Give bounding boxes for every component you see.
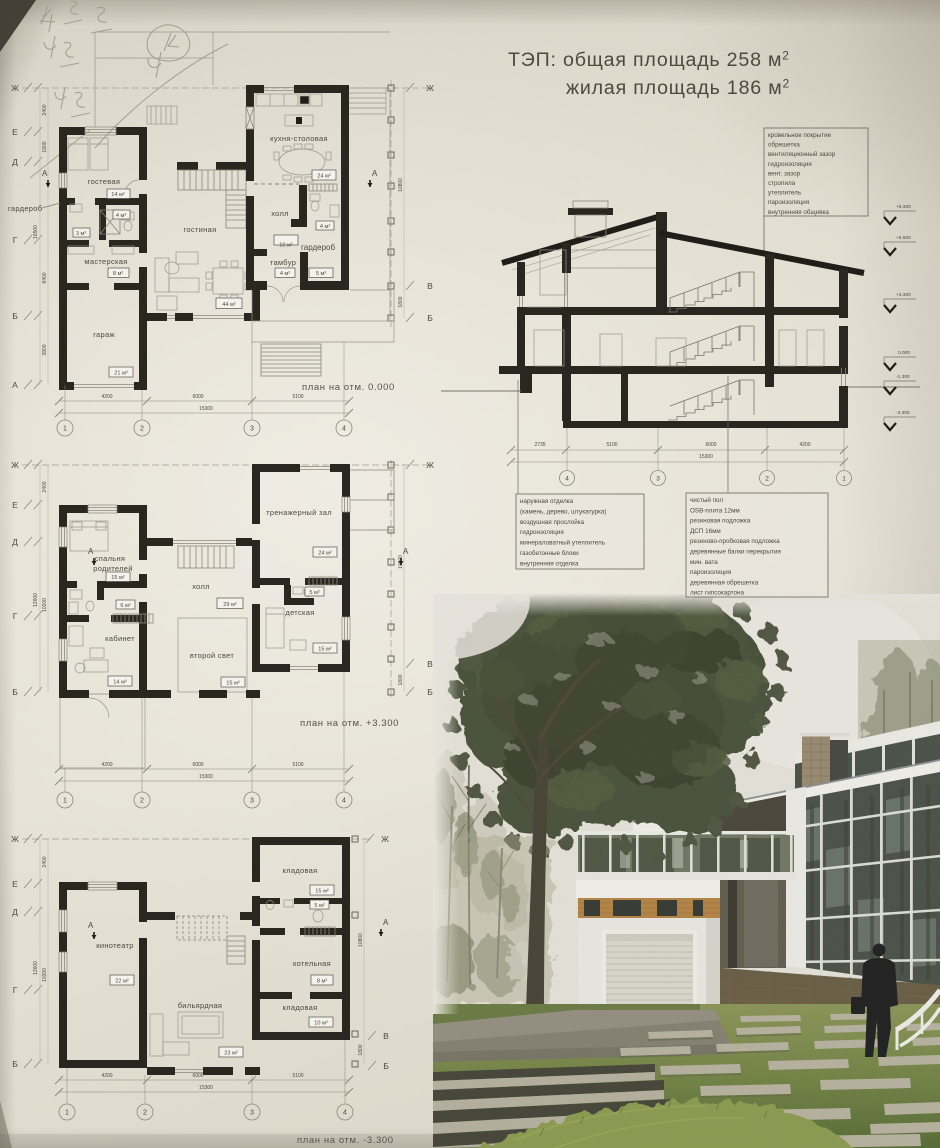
svg-text:Б: Б bbox=[12, 687, 18, 697]
svg-text:тамбур: тамбур bbox=[270, 258, 296, 267]
svg-text:5100: 5100 bbox=[292, 394, 303, 400]
svg-text:1: 1 bbox=[63, 798, 67, 805]
svg-text:внутренняя отделка: внутренняя отделка bbox=[520, 560, 579, 567]
svg-text:2400: 2400 bbox=[42, 856, 48, 867]
svg-text:1: 1 bbox=[842, 476, 846, 483]
svg-text:1: 1 bbox=[65, 1110, 69, 1117]
svg-text:15300: 15300 bbox=[199, 406, 213, 412]
svg-text:Д: Д bbox=[12, 537, 18, 547]
svg-text:спальня: спальня bbox=[95, 554, 126, 563]
svg-text:тренажерный зал: тренажерный зал bbox=[266, 508, 332, 517]
svg-text:15300: 15300 bbox=[699, 454, 713, 460]
svg-text:Б: Б bbox=[427, 687, 433, 697]
svg-text:вент. зазор: вент. зазор bbox=[768, 170, 801, 177]
svg-text:план на отм. 0.000: план на отм. 0.000 bbox=[302, 382, 395, 393]
svg-text:3: 3 bbox=[250, 426, 254, 433]
svg-text:5100: 5100 bbox=[292, 1073, 303, 1079]
svg-text:А: А bbox=[88, 547, 94, 556]
svg-text:4: 4 bbox=[565, 476, 569, 483]
svg-text:15 м²: 15 м² bbox=[111, 575, 125, 581]
svg-text:4 м²: 4 м² bbox=[320, 224, 331, 230]
svg-text:обрешетка: обрешетка bbox=[768, 141, 800, 149]
svg-text:5100: 5100 bbox=[292, 762, 303, 768]
svg-text:16500: 16500 bbox=[33, 225, 39, 239]
svg-text:4: 4 bbox=[342, 798, 346, 805]
svg-text:утеплитель: утеплитель bbox=[768, 190, 802, 197]
svg-text:холл: холл bbox=[271, 209, 289, 218]
svg-text:гидроизоляция: гидроизоляция bbox=[768, 161, 812, 168]
svg-text:Е: Е bbox=[12, 127, 18, 137]
svg-text:Ж: Ж bbox=[381, 834, 389, 844]
svg-text:2: 2 bbox=[765, 476, 769, 483]
svg-text:гараж: гараж bbox=[93, 330, 115, 339]
svg-text:пароизоляция: пароизоляция bbox=[768, 199, 809, 206]
svg-text:3800: 3800 bbox=[42, 344, 48, 355]
svg-text:15 м²: 15 м² bbox=[226, 681, 240, 687]
svg-text:план на отм. +3.300: план на отм. +3.300 bbox=[300, 718, 399, 729]
svg-text:минераловатный утеплитель: минераловатный утеплитель bbox=[520, 539, 606, 547]
svg-text:кладовая: кладовая bbox=[283, 1003, 318, 1012]
svg-text:пароизоляция: пароизоляция bbox=[690, 569, 731, 576]
svg-text:Б: Б bbox=[427, 313, 433, 323]
svg-text:22 м²: 22 м² bbox=[115, 979, 129, 985]
svg-text:холл: холл bbox=[192, 582, 210, 591]
svg-text:10200: 10200 bbox=[42, 598, 48, 612]
svg-text:газобетонные блоки: газобетонные блоки bbox=[520, 549, 579, 557]
svg-text:4200: 4200 bbox=[101, 762, 112, 768]
svg-text:15300: 15300 bbox=[199, 774, 213, 780]
svg-text:чистый пол: чистый пол bbox=[690, 496, 723, 504]
svg-text:+3.300: +3.300 bbox=[896, 292, 911, 298]
svg-text:Д: Д bbox=[12, 907, 18, 917]
svg-text:+8.300: +8.300 bbox=[896, 204, 911, 210]
svg-text:В: В bbox=[427, 659, 433, 669]
svg-text:2: 2 bbox=[140, 798, 144, 805]
svg-text:8 м²: 8 м² bbox=[113, 271, 124, 277]
svg-text:деревянные балки перекрытия: деревянные балки перекрытия bbox=[690, 548, 781, 556]
svg-text:Г: Г bbox=[13, 985, 18, 995]
svg-text:гардероб: гардероб bbox=[301, 243, 335, 252]
svg-text:котельная: котельная bbox=[293, 959, 331, 968]
svg-text:2: 2 bbox=[143, 1110, 147, 1117]
svg-text:3: 3 bbox=[250, 1110, 254, 1117]
svg-text:деревянная обрешетка: деревянная обрешетка bbox=[690, 578, 759, 586]
svg-text:2400: 2400 bbox=[42, 104, 48, 115]
svg-text:В: В bbox=[383, 1031, 389, 1041]
svg-text:В: В bbox=[427, 281, 433, 291]
svg-text:12600: 12600 bbox=[33, 961, 39, 975]
svg-text:0.000: 0.000 bbox=[898, 350, 910, 356]
svg-text:гардероб: гардероб bbox=[8, 204, 42, 213]
svg-text:6 м²: 6 м² bbox=[120, 603, 131, 609]
svg-text:А: А bbox=[403, 547, 409, 556]
svg-text:5 м²: 5 м² bbox=[316, 271, 327, 277]
svg-text:10800: 10800 bbox=[398, 178, 404, 192]
svg-text:21 м²: 21 м² bbox=[114, 371, 128, 377]
svg-text:23 м²: 23 м² bbox=[224, 1051, 238, 1057]
svg-text:А: А bbox=[88, 921, 94, 930]
svg-text:внутренняя общивка: внутренняя общивка bbox=[768, 208, 829, 216]
svg-text:(камень, дерево, штукатурка): (камень, дерево, штукатурка) bbox=[520, 508, 606, 515]
svg-text:Д: Д bbox=[12, 157, 18, 167]
svg-text:жилая площадь 186 м2: жилая площадь 186 м2 bbox=[566, 77, 790, 100]
svg-text:бильярдная: бильярдная bbox=[178, 1001, 223, 1010]
svg-text:6000: 6000 bbox=[705, 442, 716, 448]
svg-text:гидроизоляция: гидроизоляция bbox=[520, 529, 564, 536]
svg-text:1: 1 bbox=[63, 426, 67, 433]
svg-text:ТЭП: общая площадь 258 м2: ТЭП: общая площадь 258 м2 bbox=[508, 49, 790, 72]
svg-text:Ж: Ж bbox=[426, 460, 434, 470]
svg-text:4 м²: 4 м² bbox=[116, 213, 127, 219]
svg-text:10800: 10800 bbox=[358, 933, 364, 947]
svg-text:Ж: Ж bbox=[426, 83, 434, 93]
svg-text:4200: 4200 bbox=[101, 394, 112, 400]
svg-text:4: 4 bbox=[343, 1110, 347, 1117]
svg-text:10 м²: 10 м² bbox=[279, 243, 293, 249]
svg-text:наружная отделка: наружная отделка bbox=[520, 498, 574, 505]
svg-text:1800: 1800 bbox=[398, 674, 404, 685]
svg-text:8 м²: 8 м² bbox=[317, 979, 328, 985]
svg-text:OSB-плита 12мм: OSB-плита 12мм bbox=[690, 507, 740, 514]
svg-text:3: 3 bbox=[656, 476, 660, 483]
svg-text:5 м²: 5 м² bbox=[314, 903, 325, 909]
svg-text:резиновая подложка: резиновая подложка bbox=[690, 518, 751, 525]
svg-text:воздушная прослойка: воздушная прослойка bbox=[520, 518, 585, 526]
svg-text:Г: Г bbox=[13, 235, 18, 245]
svg-text:Б: Б bbox=[383, 1061, 389, 1071]
svg-text:Б: Б bbox=[12, 1059, 18, 1069]
svg-text:4200: 4200 bbox=[799, 442, 810, 448]
svg-text:10 м²: 10 м² bbox=[314, 1021, 328, 1027]
svg-text:Г: Г bbox=[13, 611, 18, 621]
svg-text:ДСП 16мм: ДСП 16мм bbox=[690, 528, 721, 535]
svg-text:детская: детская bbox=[285, 608, 314, 617]
svg-text:29 м²: 29 м² bbox=[223, 602, 237, 608]
svg-text:Б: Б bbox=[12, 311, 18, 321]
svg-text:6000: 6000 bbox=[192, 394, 203, 400]
svg-text:гостевая: гостевая bbox=[88, 177, 121, 186]
svg-text:Ж: Ж bbox=[11, 83, 19, 93]
svg-text:А: А bbox=[12, 380, 18, 390]
svg-text:А: А bbox=[372, 169, 378, 178]
svg-text:Е: Е bbox=[12, 500, 18, 510]
svg-text:кровельное покрытие: кровельное покрытие bbox=[768, 132, 832, 139]
svg-text:3: 3 bbox=[250, 798, 254, 805]
svg-text:Ж: Ж bbox=[11, 834, 19, 844]
svg-text:6000: 6000 bbox=[192, 1073, 203, 1079]
svg-text:14 м²: 14 м² bbox=[111, 192, 125, 198]
svg-text:2735: 2735 bbox=[534, 442, 545, 448]
svg-text:А: А bbox=[42, 169, 48, 178]
svg-text:резиново-пробковая подложка: резиново-пробковая подложка bbox=[690, 537, 780, 545]
svg-text:4200: 4200 bbox=[101, 1073, 112, 1079]
svg-text:2400: 2400 bbox=[42, 481, 48, 492]
svg-text:5100: 5100 bbox=[606, 442, 617, 448]
svg-text:24 м²: 24 м² bbox=[318, 551, 332, 557]
svg-text:15 м²: 15 м² bbox=[315, 889, 329, 895]
svg-text:10200: 10200 bbox=[42, 968, 48, 982]
svg-text:второй свет: второй свет bbox=[190, 651, 235, 660]
svg-text:-1.300: -1.300 bbox=[896, 374, 910, 380]
svg-text:-3.300: -3.300 bbox=[896, 410, 910, 416]
svg-text:4 м²: 4 м² bbox=[280, 271, 291, 277]
svg-text:3 м²: 3 м² bbox=[76, 231, 87, 237]
svg-text:15 м²: 15 м² bbox=[318, 647, 332, 653]
svg-text:4: 4 bbox=[342, 426, 346, 433]
svg-text:8400: 8400 bbox=[42, 272, 48, 283]
svg-text:мастерская: мастерская bbox=[84, 257, 127, 266]
svg-text:кабинет: кабинет bbox=[105, 634, 135, 643]
svg-text:2: 2 bbox=[140, 426, 144, 433]
svg-text:+6.600: +6.600 bbox=[896, 235, 911, 241]
svg-text:1800: 1800 bbox=[398, 296, 404, 307]
svg-text:гостиная: гостиная bbox=[184, 225, 217, 234]
svg-text:1800: 1800 bbox=[42, 141, 48, 152]
svg-text:стропила: стропила bbox=[768, 180, 796, 187]
svg-text:мин. вата: мин. вата bbox=[690, 559, 718, 566]
svg-text:вентиляционный зазор: вентиляционный зазор bbox=[768, 150, 836, 158]
svg-text:12600: 12600 bbox=[33, 593, 39, 607]
svg-text:Ж: Ж bbox=[11, 460, 19, 470]
svg-text:кинотеатр: кинотеатр bbox=[96, 941, 133, 950]
svg-text:1800: 1800 bbox=[358, 1044, 364, 1055]
svg-text:кладовая: кладовая bbox=[283, 866, 318, 875]
svg-text:6000: 6000 bbox=[192, 762, 203, 768]
svg-text:44 м²: 44 м² bbox=[222, 302, 236, 308]
svg-text:14 м²: 14 м² bbox=[113, 680, 127, 686]
svg-text:Е: Е bbox=[12, 879, 18, 889]
svg-text:лист гипсокартона: лист гипсокартона bbox=[690, 590, 744, 597]
svg-text:5 м²: 5 м² bbox=[309, 590, 320, 596]
svg-text:15300: 15300 bbox=[199, 1085, 213, 1091]
svg-text:кухня-столовая: кухня-столовая bbox=[270, 134, 328, 143]
svg-text:А: А bbox=[383, 918, 389, 927]
svg-text:24 м²: 24 м² bbox=[317, 174, 331, 180]
